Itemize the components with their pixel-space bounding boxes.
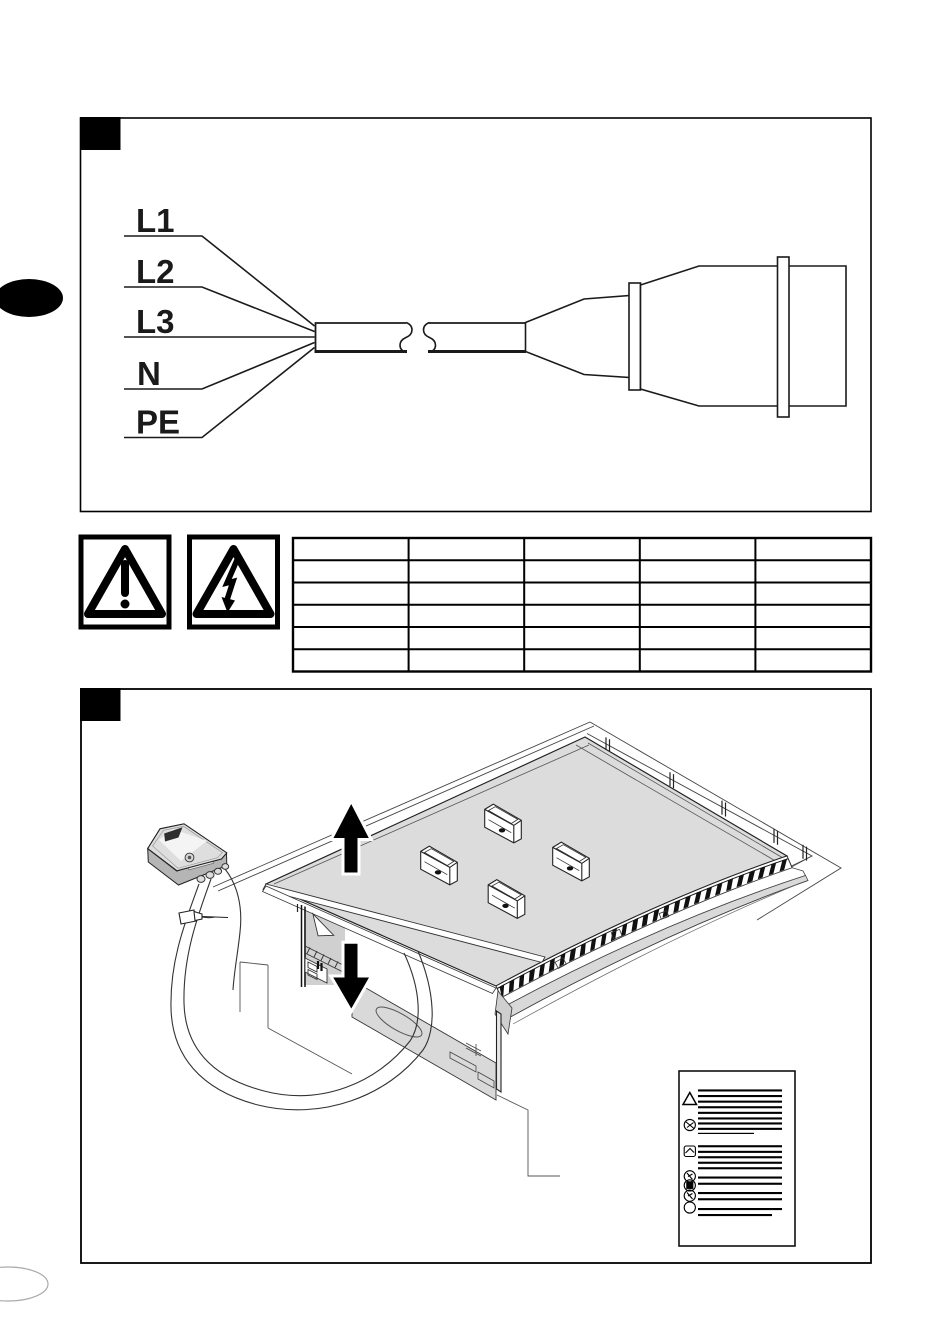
svg-text:L2: L2 [136,253,175,290]
svg-text:PE: PE [136,404,180,441]
svg-text:L3: L3 [136,303,175,340]
svg-text:N: N [137,355,161,392]
svg-text:L1: L1 [136,202,175,239]
